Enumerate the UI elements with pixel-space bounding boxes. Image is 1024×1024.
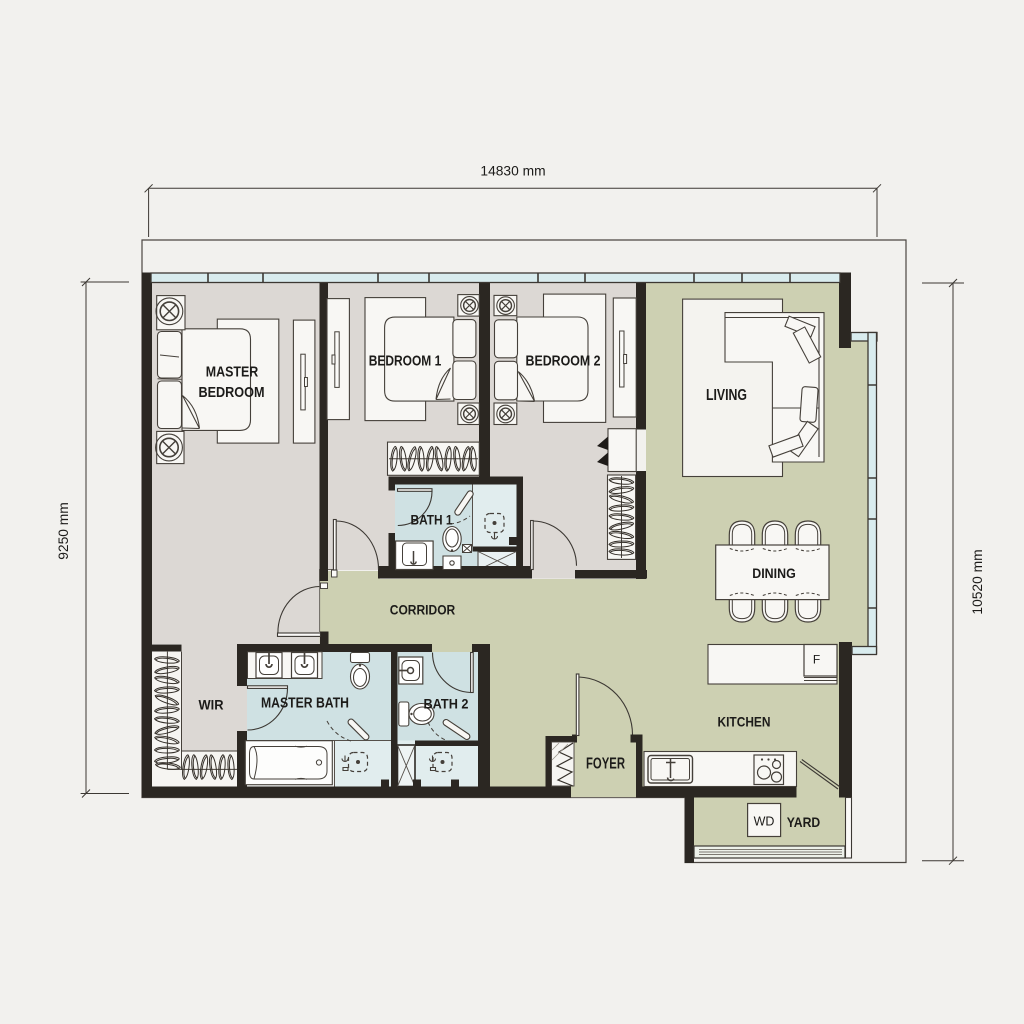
svg-text:14830 mm: 14830 mm	[480, 164, 545, 179]
svg-text:LIVING: LIVING	[706, 387, 747, 404]
svg-text:WD: WD	[754, 815, 775, 829]
svg-text:DINING: DINING	[752, 566, 796, 581]
svg-text:9250 mm: 9250 mm	[56, 502, 71, 560]
svg-text:CORRIDOR: CORRIDOR	[390, 603, 456, 618]
svg-text:YARD: YARD	[787, 814, 821, 830]
svg-text:BEDROOM: BEDROOM	[199, 384, 265, 401]
svg-text:WIR: WIR	[199, 697, 224, 713]
svg-text:BEDROOM 1: BEDROOM 1	[369, 353, 442, 370]
svg-text:10520 mm: 10520 mm	[970, 549, 985, 614]
svg-text:MASTER BATH: MASTER BATH	[261, 695, 349, 712]
svg-text:KITCHEN: KITCHEN	[718, 715, 771, 730]
svg-text:MASTER: MASTER	[206, 364, 259, 381]
svg-text:BEDROOM 2: BEDROOM 2	[526, 353, 601, 370]
svg-text:FOYER: FOYER	[586, 756, 625, 773]
svg-text:F: F	[813, 653, 820, 667]
svg-text:BATH 1: BATH 1	[411, 512, 453, 528]
svg-text:BATH 2: BATH 2	[424, 696, 469, 712]
